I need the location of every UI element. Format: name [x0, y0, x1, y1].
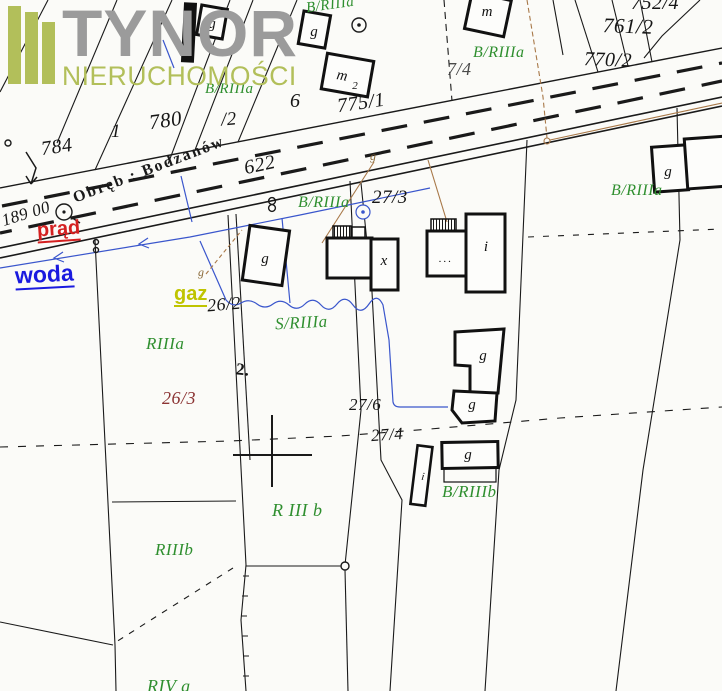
- gas-marker-g: g: [370, 150, 377, 162]
- soil-label-riv-a: RIV a: [147, 677, 191, 691]
- utility-label-woda: woda: [14, 261, 74, 290]
- soil-label-riiib: RIIIb: [155, 541, 193, 558]
- building-label-m2-sub: 2: [352, 80, 358, 92]
- parcel-label-761-2: 761/2: [603, 15, 654, 38]
- parcel-label-780: 780: [148, 108, 184, 133]
- parcel-label-752-4: 752/4: [631, 0, 679, 13]
- parcel-label-27-4: 27/4: [370, 425, 403, 444]
- soil-label-b-riiib: B/RIIIb: [442, 483, 496, 500]
- logo-bars-icon: [6, 2, 58, 84]
- building-ne-annex: [684, 136, 722, 189]
- parcel-label-slash2: /2: [220, 109, 237, 129]
- water-arrow-icon: [139, 238, 149, 248]
- building-g-bottom-terrace: [444, 468, 496, 482]
- building-label-i: i: [484, 239, 488, 255]
- building-label-dots: ...: [439, 253, 453, 265]
- cadastral-map: g g m 2 m g x i ... g g g g i B/RIIIa 75…: [0, 0, 722, 691]
- utility-label-gaz: gaz: [174, 284, 207, 307]
- parcel-label-27-6: 27/6: [349, 396, 381, 413]
- logo-subtitle: NIERUCHOMOŚCI: [62, 63, 298, 90]
- parcel-label-26-3: 26/3: [162, 389, 196, 407]
- building-label-m: m: [482, 4, 493, 20]
- soil-label-b-riiia: B/RIIIa: [611, 183, 662, 199]
- building-i-hatch: [431, 219, 456, 231]
- bent-arrow-icon: [26, 152, 37, 184]
- survey-cross-icon: [233, 415, 312, 487]
- building-x-main: [327, 238, 372, 278]
- parcel-label-27-3: 27/3: [372, 188, 408, 207]
- soil-label-r-iii-b: R III b: [272, 501, 322, 519]
- company-logo: TYNOR NIERUCHOMOŚCI: [6, 2, 298, 89]
- soil-label-b-riiia: B/RIIIa: [473, 45, 524, 61]
- parcel-label-6: 6: [290, 91, 301, 111]
- point-label-2: 2.: [235, 360, 250, 378]
- soil-label-b-riiia: B/RIIIa: [298, 195, 349, 211]
- soil-label-s-riiia: S/RIIIa: [275, 313, 328, 333]
- parcel-label-1: 1: [111, 122, 121, 141]
- logo-title: TYNOR: [62, 2, 298, 65]
- parcel-label-26-2: 26/2: [206, 294, 241, 315]
- building-label-g: g: [479, 348, 487, 364]
- soil-label-riiia: RIIIa: [146, 335, 184, 352]
- building-label-x: x: [380, 253, 388, 269]
- parcel-label-770-2: 770/2: [584, 49, 633, 71]
- building-label-g: g: [261, 251, 269, 267]
- building-label-g: g: [468, 397, 476, 413]
- building-label-g: g: [310, 24, 318, 40]
- boundary-point-icon: [341, 562, 349, 570]
- building-label-g: g: [464, 447, 472, 463]
- building-label-g: g: [664, 164, 672, 180]
- parcel-label-7-4: 7/4: [447, 60, 472, 78]
- gas-marker-g: g: [198, 266, 205, 278]
- utility-label-prad: prąd: [36, 218, 81, 244]
- parcel-label-784: 784: [40, 135, 74, 159]
